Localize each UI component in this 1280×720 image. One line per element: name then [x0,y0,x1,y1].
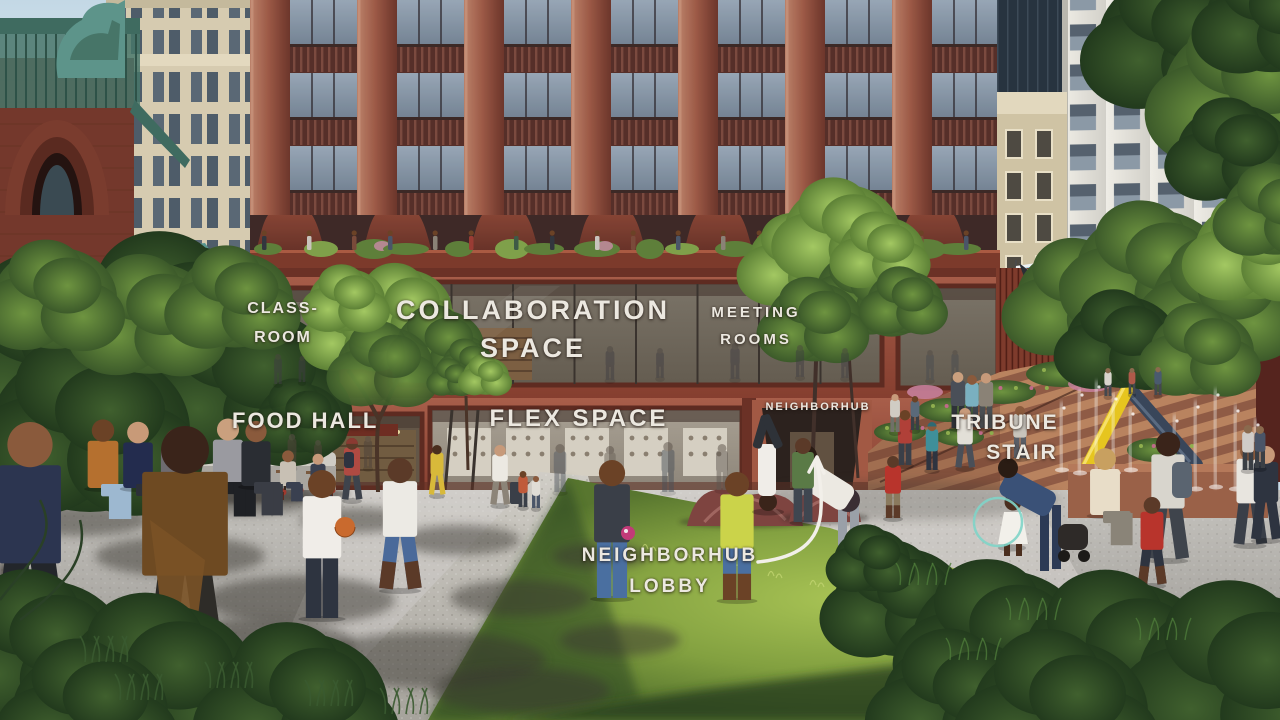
lobby-callout-arrow [748,448,838,578]
label-neighborhub-sign: NEIGHBORHUB [765,402,871,413]
label-flex-space: FLEX SPACE [484,407,674,431]
label-tribune-line2: STAIR [943,442,1067,463]
label-classroom-line2: ROOM [228,330,338,346]
label-classroom-line1: CLASS- [247,300,319,317]
label-neighborhub-lobby: NEIGHBORHUB LOBBY [577,546,763,596]
label-lobby-line2: LOBBY [577,577,763,596]
label-lobby-line1: NEIGHBORHUB [582,545,759,566]
label-collab-line2: SPACE [383,335,683,362]
architectural-rendering: CLASS- ROOM COLLABORATION SPACE MEETING … [0,0,1280,720]
label-tribune-line1: TRIBUNE [951,411,1058,434]
label-collab-line1: COLLABORATION [396,295,670,325]
label-meeting-line1: MEETING [711,304,800,321]
label-tribune-stair: TRIBUNE STAIR [943,412,1067,463]
label-meeting-line2: ROOMS [700,332,812,347]
label-food-hall: FOOD HALL [232,410,377,432]
label-collaboration-space: COLLABORATION SPACE [383,297,683,362]
label-meeting-rooms: MEETING ROOMS [700,305,812,347]
label-classroom: CLASS- ROOM [228,301,338,346]
